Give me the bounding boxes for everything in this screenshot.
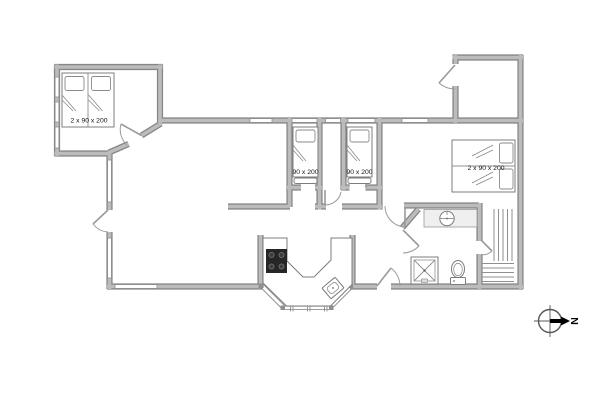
pillow xyxy=(296,130,315,142)
window xyxy=(292,119,317,123)
window xyxy=(108,160,112,202)
floor-plan-svg: 2 x 90 x 200 90 x 200 90 x 200 xyxy=(0,0,600,400)
north-label: N xyxy=(568,317,580,325)
room-bedroom-top-left: 2 x 90 x 200 xyxy=(62,73,114,127)
door-terrace-west xyxy=(93,210,108,232)
room-bedroom-right: 2 x 90 x 200 xyxy=(452,140,515,192)
compass-rose: N xyxy=(534,305,580,337)
window xyxy=(55,102,59,122)
pillow xyxy=(500,169,514,189)
shower-icon xyxy=(411,257,438,284)
pillow xyxy=(500,143,514,163)
pillow xyxy=(92,77,111,91)
window xyxy=(55,77,59,97)
room-bedroom-middle-left: 90 x 200 xyxy=(292,127,318,184)
floor-plan-page: 2 x 90 x 200 90 x 200 90 x 200 xyxy=(0,0,600,400)
bathroom xyxy=(411,210,477,285)
toilet-icon xyxy=(451,261,466,285)
pillow xyxy=(65,77,84,91)
bed-size-label: 90 x 200 xyxy=(346,169,372,176)
window xyxy=(326,119,341,123)
window xyxy=(55,127,59,148)
bed-size-label: 2 x 90 x 200 xyxy=(467,165,504,172)
door-bathroom xyxy=(403,230,419,253)
pillow xyxy=(350,130,369,142)
kitchen xyxy=(263,238,352,306)
window xyxy=(108,238,112,278)
window xyxy=(348,119,375,123)
stove-icon xyxy=(266,249,287,273)
door-bedroom-top-left xyxy=(120,124,141,145)
bed-size-label: 2 x 90 x 200 xyxy=(70,118,107,125)
door-back-south xyxy=(377,268,400,286)
window xyxy=(115,285,157,289)
bed-size-label: 90 x 200 xyxy=(292,169,318,176)
window xyxy=(250,119,272,123)
window xyxy=(402,119,428,123)
door-sauna xyxy=(481,240,492,255)
door-bedroom-middle-left xyxy=(325,190,341,205)
room-bedroom-middle-right: 90 x 200 xyxy=(346,127,372,184)
